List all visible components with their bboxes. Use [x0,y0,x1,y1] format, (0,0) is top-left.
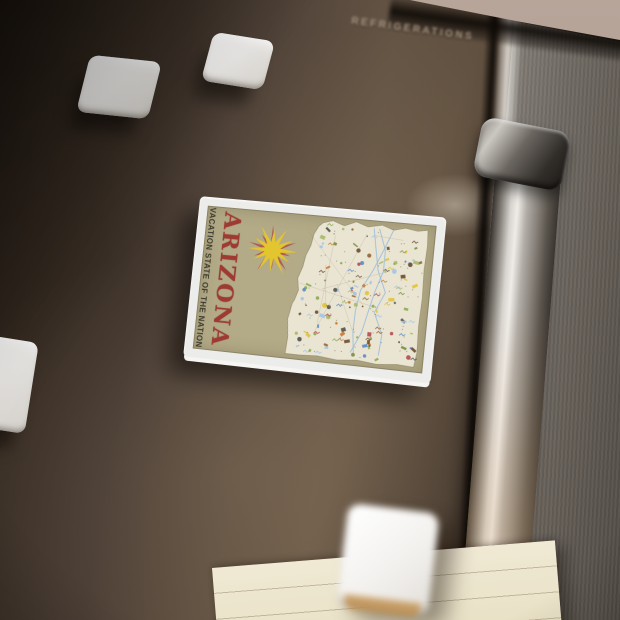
white-square-magnet-foreground [336,503,440,617]
arizona-poster-magnet: VACATION STATE OF THE NATION ARIZONA [183,196,447,384]
arizona-map [257,212,435,371]
white-square-magnet [76,55,162,119]
arizona-poster: VACATION STATE OF THE NATION ARIZONA [193,206,437,374]
arizona-state-shape [284,217,429,369]
white-square-magnet [201,32,275,90]
fridge-product-photo: REFRIGERATIONS VACATION STATE OF THE NAT… [0,0,620,620]
